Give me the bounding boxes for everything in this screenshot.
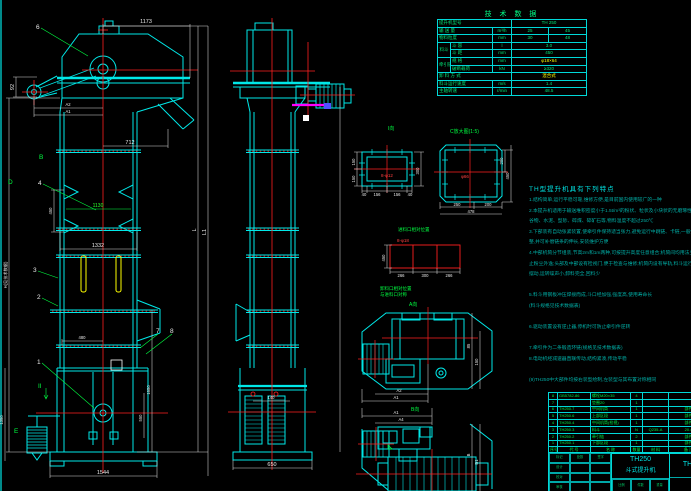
flange-note-1: 卸料口相对位置 (380, 285, 412, 292)
balloon-6: 6 (36, 24, 40, 31)
bom-cell: TH250.3 (558, 426, 591, 433)
bom-cell: 部件 (669, 433, 691, 440)
tb-cell (570, 473, 591, 483)
note-line: 8.电动机经减速器直联传动,结构紧凑,传动平稳 (529, 355, 691, 366)
dim-boot-left-h: 1350 (0, 415, 4, 425)
bom-cell (643, 393, 669, 400)
tech-bucket-group: 料斗 (438, 42, 451, 57)
tb-cell (570, 482, 591, 491)
bom-row: 5TH250.6上部区段1部件 (549, 413, 691, 420)
tech-speed-value: 1.4 (512, 80, 587, 88)
bom-cell: 牵引链 (591, 433, 631, 440)
view-a-centerlines (358, 307, 478, 378)
feed-title-label: 进料口相对位置 (398, 226, 430, 233)
bom-cell (643, 420, 669, 427)
feed-opening-figure (390, 245, 460, 268)
bom-cell: 1 (631, 413, 643, 420)
blue-highlight-dot (324, 103, 331, 109)
note-line: 止粉尘外逸;头部及中部设有检视门,便于检查与维修;机筒内设有导轨,料斗运行平稳,… (529, 260, 691, 271)
bom-cell: N (631, 426, 643, 433)
bom-row: 7垫圈201 (549, 399, 691, 406)
tb-cell: 标记 (549, 453, 570, 463)
tech-row-chain-spec: 牵引链 规 格 mm φ18×64 (438, 57, 587, 65)
tech-bucket-pitch-label: 斗 距 (451, 50, 493, 58)
tb-cell (590, 473, 611, 483)
dim-feed-b1: 266 (398, 273, 406, 278)
bom-cell: 垫圈20 (591, 399, 631, 406)
dimension-texts: 1173 92 A2 A1 712 H(见技术数据) 450 1130 1332… (0, 19, 510, 476)
bom-cell (669, 393, 691, 400)
tb-cell (590, 463, 611, 473)
bom-cell: TH250.7 (558, 406, 591, 413)
tb-cell (590, 482, 611, 491)
bom-cell: TH250.6 (558, 413, 591, 420)
dim-vc-total: 478 (468, 209, 476, 214)
bom-cell: 20.4 (669, 426, 691, 433)
tech-capacity-v2: 45 (549, 27, 587, 35)
dim-va-r1: 85 (466, 343, 471, 348)
note-line: 摆动,运转噪声小,卸料完全,回料少 (529, 270, 691, 281)
tb-cell (570, 463, 591, 473)
title-block-number-area: TH2 (670, 453, 691, 491)
drawing-number: TH2 (670, 453, 691, 477)
tech-chain-break-label: 破断载荷 (451, 65, 493, 73)
tech-row-model: 提升机型号 TH 250 (438, 20, 587, 28)
bom-cell: 部件 (669, 440, 691, 447)
bom-cell: 1 (631, 440, 643, 447)
tech-capacity-v1: 25 (512, 27, 549, 35)
white-dim-box (303, 115, 309, 121)
dim-va-a2: A2 (396, 388, 402, 393)
dim-vi-left-a: 150 (351, 158, 356, 166)
tb-cell (670, 477, 691, 491)
tech-bucket-pitch-value: 450 (512, 50, 587, 58)
bom-cell: Q235-A (643, 426, 669, 433)
tech-discharge-label: 卸 料 方 式 (438, 73, 512, 81)
dim-vc-b1: 250 (454, 202, 462, 207)
bom-cell: 3 (549, 426, 558, 433)
view-b-geometry (362, 424, 492, 491)
note-line (529, 334, 691, 345)
section-letter-e: E (14, 428, 19, 435)
tech-discharge-value: 混合式 (512, 73, 587, 81)
dim-mid-top: 140 (268, 395, 276, 400)
bom-cell (643, 433, 669, 440)
bom-cell: 4 (631, 393, 643, 400)
balloon-7: 7 (156, 328, 160, 335)
dim-pitch: 450 (48, 207, 53, 215)
product-model: TH250 (612, 453, 669, 466)
title-block: 标记处数签字 设计 校对 审核 TH250 斗式提升机 比例 件数 重量 TH2 (548, 452, 691, 491)
bom-cell: 6 (549, 406, 558, 413)
tb-cell: 校对 (549, 473, 570, 483)
tech-bucket-vol-unit: l (493, 42, 512, 50)
bom-cell: GB5782-86 (558, 393, 591, 400)
dim-vi-right: 300 (415, 167, 420, 175)
tech-grain-v2: 48 (549, 35, 587, 43)
bom-cell: 1 (549, 440, 558, 447)
tech-row-speed: 料斗运行速度 m/s 1.4 (438, 80, 587, 88)
tech-row-bucket-pitch: 斗 距 mm 450 (438, 50, 587, 58)
note-line: 3.下部装有自动张紧装置,使牵引件保持适当张力,避免运行中跳链、卡链,一般情况下… (529, 228, 691, 239)
tech-chain-spec-value: φ18×64 (512, 57, 587, 65)
bom-cell: 2 (631, 433, 643, 440)
bom-cell (669, 399, 691, 406)
feature-notes-title: TH型提升机具有下列特点 (529, 183, 691, 193)
dim-vb-a1: A1 (393, 410, 399, 415)
dim-head-h: 92 (10, 84, 16, 90)
note-line: (9)TH250中大部件均按右装型绘制,左装型与其布置对称相同 (529, 376, 691, 387)
dim-feed-left: 450 (381, 254, 386, 262)
tb-cell: 重量 (650, 479, 669, 491)
dim-vc-right-b: 450 (505, 172, 510, 180)
tb-cell: 设计 (549, 463, 570, 473)
dim-vb-a4: A4 (398, 417, 404, 422)
note-line: 整,并可补偿链条的伸长,安装维护方便 (529, 238, 691, 249)
view-c-label: C放大图(1:5) (450, 128, 479, 135)
tech-row-rpm: 主轴转速 r/min 48.5 (438, 88, 587, 96)
tech-model-value: TH 250 (512, 20, 587, 28)
dim-boot-right-h: 1650 (146, 385, 151, 395)
dim-vb-b: B (466, 453, 471, 456)
bom-row: 8GB5782-86螺栓M20×354 (549, 393, 691, 400)
dim-vc-right-a: 200 (499, 157, 504, 165)
tech-row-discharge: 卸 料 方 式 混合式 (438, 73, 587, 81)
tech-grain-v1: 30 (512, 35, 549, 43)
note-line: 谷物、水泥、型砂、碎煤、碎矿石等,物料温度不超过250℃ (529, 217, 691, 228)
tech-row-chain-break: 破断载荷 kN ≥320 (438, 65, 587, 73)
bom-cell: 中间机筒 (591, 406, 631, 413)
tech-row-capacity: 输 送 量 m³/h 25 45 (438, 27, 587, 35)
bom-row: 4TH250.4中间机筒(检视)1部件 (549, 420, 691, 427)
front-view-yellow-details (81, 256, 121, 292)
tech-speed-label: 料斗运行速度 (438, 80, 493, 88)
tb-cell: 审核 (549, 482, 570, 491)
view-labels: I向 C放大图(1:5) 进料口相对位置 卸料口相对位置 与进料口对称 A向 B… (380, 125, 479, 413)
dim-len-l: L (192, 228, 198, 231)
tech-grain-unit: mm (493, 35, 512, 43)
note-line (529, 366, 691, 377)
balloon-callouts: 6 4 3 2 1 7 8 B D II E (8, 24, 174, 435)
tech-rpm-label: 主轴转速 (438, 88, 493, 96)
note-line: (料斗规格见技术数据表) (529, 302, 691, 313)
tb-cell: 签字 (590, 453, 611, 463)
title-block-revision-area: 标记处数签字 设计 校对 审核 (549, 453, 612, 491)
tech-chain-spec-unit: mm (493, 57, 512, 65)
note-line: 1.结构简单,运行平稳可靠,维修方便,是目前国内使用较广的一种 (529, 196, 691, 207)
bom-row: 2TH250.2牵引链2部件 (549, 433, 691, 440)
cad-model-space: 1173 92 A2 A1 712 H(见技术数据) 450 1130 1332… (0, 0, 691, 491)
tech-bucket-pitch-unit: mm (493, 50, 512, 58)
bom-cell: 料斗 (591, 426, 631, 433)
view-a-label: A向 (409, 301, 417, 308)
front-view-geometry (27, 21, 194, 466)
tech-grain-label: 物料粒度 (438, 35, 493, 43)
bom-cell: 7 (549, 399, 558, 406)
tech-model-label: 提升机型号 (438, 20, 512, 28)
view-i-label: I向 (388, 125, 394, 132)
bom-cell: 部件 (669, 406, 691, 413)
dim-a2: A2 (65, 102, 71, 107)
bom-cell: 4 (549, 420, 558, 427)
tech-bucket-vol-label: 斗 容 (451, 42, 493, 50)
dim-boot-door: 480 (79, 335, 87, 340)
note-line (529, 313, 691, 324)
bom-cell: TH250.4 (558, 420, 591, 427)
dim-vb-b1: B1 (474, 459, 479, 465)
product-name: 斗式提升机 (612, 466, 669, 478)
section-letter-ii: II (38, 383, 42, 390)
dim-mid-base: 650 (267, 462, 276, 468)
note-line: 2.本提升机适用于输送堆积密度小于1.5t/m³的粉状、粒状及小块状的无磨琢性、… (529, 207, 691, 218)
view-a-geometry (362, 313, 492, 389)
tb-cell: 比例 (612, 479, 631, 491)
dim-feed-b3: 266 (446, 273, 454, 278)
balloon-8: 8 (170, 328, 174, 335)
dim-vc-center: φ66 (461, 174, 469, 179)
tech-chain-spec-label: 规 格 (451, 57, 493, 65)
dim-vi-holes: 8-φ12 (381, 173, 393, 178)
dim-mid-green: 1130 (93, 203, 104, 209)
bom-row: 6TH250.7中间机筒1部件 (549, 406, 691, 413)
balloon-4: 4 (38, 180, 42, 187)
tech-data-table: 提升机型号 TH 250 输 送 量 m³/h 25 45 物料粒度 mm 30… (437, 19, 587, 96)
dim-total-h: H(见技术数据) (2, 261, 9, 288)
tb-cell: 处数 (570, 453, 591, 463)
dim-top-width: 1173 (140, 19, 152, 25)
dim-va-r2: 150 (474, 358, 479, 366)
tech-chain-group: 牵引链 (438, 57, 451, 72)
tech-table-title: 技 术 数 据 (437, 9, 587, 19)
bom-cell: 1 (631, 406, 643, 413)
balloon-2: 2 (37, 294, 41, 301)
dim-feed-b2: 300 (422, 273, 430, 278)
bom-cell: 部件 (669, 413, 691, 420)
bom-row: 1TH250.1下部区段1部件 (549, 440, 691, 447)
note-line: 6.驱动装置设有逆止器,停机时可防止牵引件逆转 (529, 323, 691, 334)
dim-feed-holes: 8-φ18 (397, 238, 409, 243)
dim-vi-b3: 156 (394, 192, 402, 197)
bom-cell (643, 440, 669, 447)
bom-cell: 8 (549, 393, 558, 400)
dim-vi-left-b: 150 (351, 175, 356, 183)
bom-cell (558, 399, 591, 406)
dim-len-l1: L1 (202, 229, 208, 235)
bom-cell: TH250.1 (558, 440, 591, 447)
bom-cell (643, 413, 669, 420)
bom-cell: 1 (631, 420, 643, 427)
balloon-1: 1 (37, 359, 41, 366)
parts-list: 8GB5782-86螺栓M20×354 7垫圈201 6TH250.7中间机筒1… (548, 392, 691, 454)
dim-a1: A1 (65, 109, 71, 114)
view-b-label: B向 (411, 406, 419, 413)
tech-rpm-value: 48.5 (512, 88, 587, 96)
dim-chute: 712 (125, 140, 134, 146)
tech-row-bucket-vol: 料斗 斗 容 l 3.0 (438, 42, 587, 50)
bom-cell: 螺栓M20×35 (591, 393, 631, 400)
dim-boot-inner-h: 550 (138, 414, 143, 422)
note-line (529, 281, 691, 292)
tech-chain-break-value: ≥320 (512, 65, 587, 73)
balloon-3: 3 (33, 267, 37, 274)
tech-row-grain: 物料粒度 mm 30 48 (438, 35, 587, 43)
tech-capacity-unit: m³/h (493, 27, 512, 35)
bom-cell: 1 (631, 399, 643, 406)
dim-vi-b2: 156 (374, 192, 382, 197)
feature-notes: TH型提升机具有下列特点 1.结构简单,运行平稳可靠,维修方便,是目前国内使用较… (529, 183, 691, 387)
dim-vc-b2: 200 (485, 202, 493, 207)
note-line: 4.中部机筒分节组装,节高2m和1m两种,可按提升高度任意组合;机筒间均用法兰联… (529, 249, 691, 260)
bom-row: 3TH250.3料斗NQ235-A20.4 (549, 426, 691, 433)
note-line: 5.料斗用钢板冲压焊接而成,斗口经加强,强度高,使用寿命长 (529, 291, 691, 302)
bom-cell: 5 (549, 413, 558, 420)
bom-cell: 部件 (669, 420, 691, 427)
tech-capacity-label: 输 送 量 (438, 27, 493, 35)
dim-vi-b4: 40 (408, 192, 413, 197)
tech-bucket-vol-value: 3.0 (512, 42, 587, 50)
tech-rpm-unit: r/min (493, 88, 512, 96)
bom-cell (643, 406, 669, 413)
section-letter-b: B (39, 154, 43, 161)
bom-cell: 2 (549, 433, 558, 440)
tech-chain-break-unit: kN (493, 65, 512, 73)
bom-cell (643, 399, 669, 406)
front-view-centerlines (22, 18, 198, 473)
dim-va-a1: A1 (393, 395, 399, 400)
view-c-geometry (440, 145, 502, 202)
note-line: 7.牵引件为二条锻造环链(规格见技术数据表) (529, 344, 691, 355)
bom-cell: 下部区段 (591, 440, 631, 447)
bom-cell: 中间机筒(检视) (591, 420, 631, 427)
feature-notes-lines: 1.结构简单,运行平稳可靠,维修方便,是目前国内使用较广的一种2.本提升机适用于… (529, 196, 691, 387)
section-letter-d: D (8, 179, 13, 186)
dim-base-width: 1544 (97, 470, 109, 476)
bom-cell: 上部区段 (591, 413, 631, 420)
tech-speed-unit: m/s (493, 80, 512, 88)
bom-cell: TH250.2 (558, 433, 591, 440)
dim-vi-b1: 40 (362, 192, 367, 197)
dim-mid-width: 1332 (92, 243, 104, 249)
tb-cell: 件数 (631, 479, 650, 491)
flange-note-2: 与进料口对称 (380, 291, 407, 298)
title-block-name-area: TH250 斗式提升机 比例 件数 重量 (612, 453, 670, 491)
